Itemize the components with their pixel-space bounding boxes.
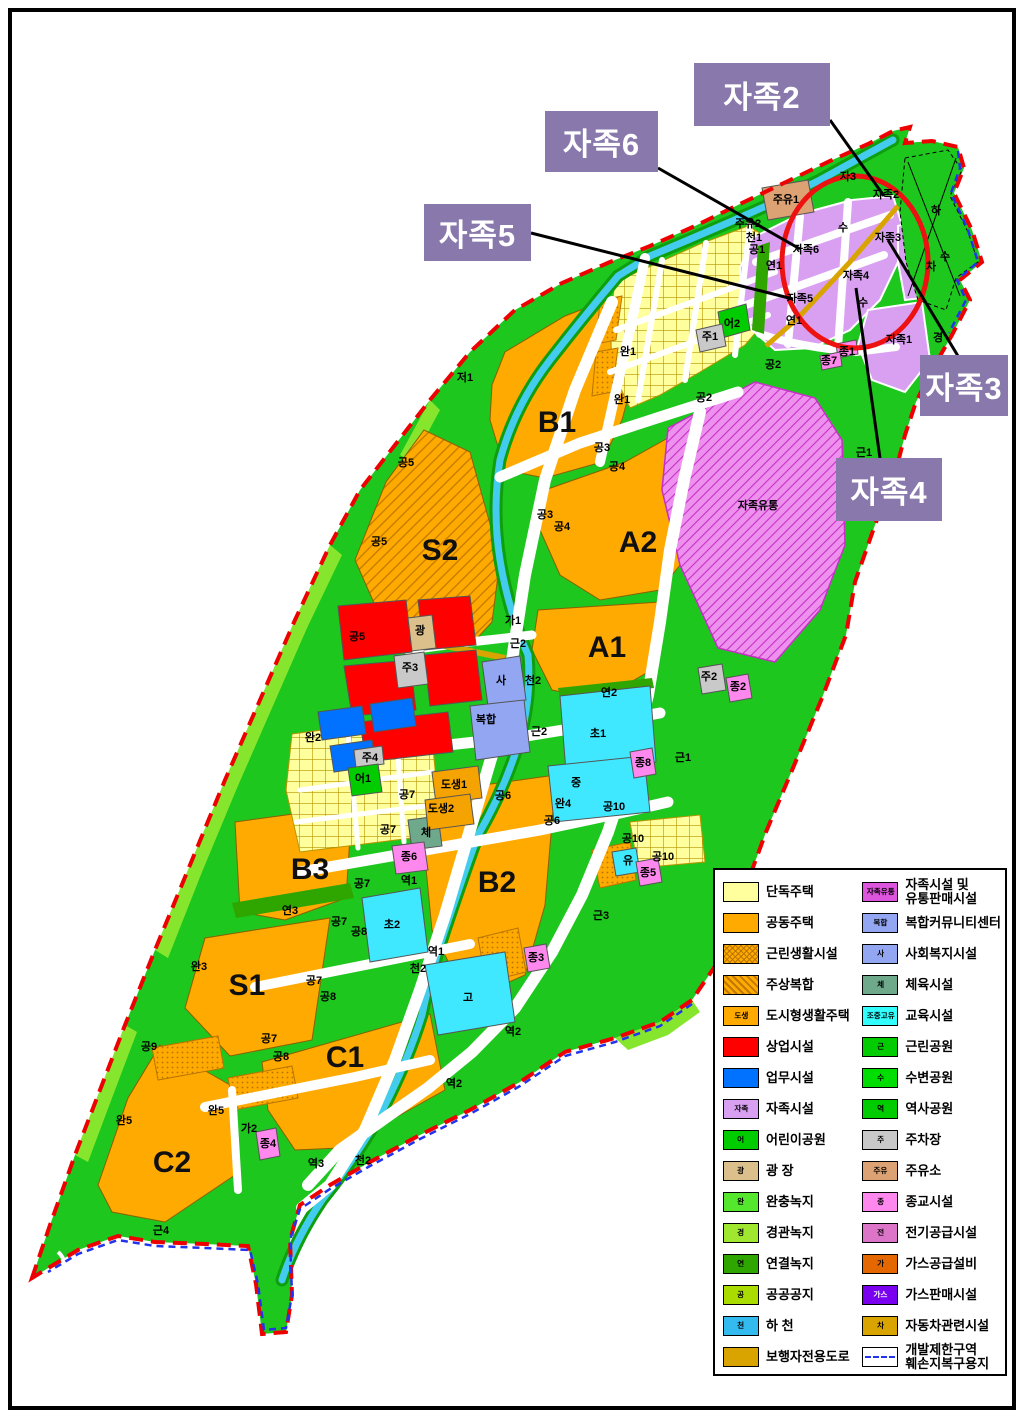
legend-swatch: 전: [862, 1223, 898, 1243]
callout-jajok2: 자족2: [694, 63, 830, 126]
map-label: 완2: [305, 731, 321, 744]
map-label: 종6: [401, 850, 417, 863]
map-label: 하: [931, 203, 942, 217]
legend-swatch-code: 완: [737, 1198, 744, 1206]
legend-swatch: [723, 1068, 759, 1088]
map-label: 차: [926, 259, 937, 273]
legend-swatch-code: 가스: [873, 1291, 887, 1299]
legend-item: 조중고유교육시설: [862, 1000, 1001, 1031]
map-label: 역2: [505, 1024, 521, 1038]
legend-item: 연연결녹지: [723, 1248, 858, 1279]
legend-swatch-code: 근: [877, 1043, 884, 1051]
legend-label: 체육시설: [905, 978, 953, 992]
legend-item: 천하 천: [723, 1310, 858, 1341]
legend-swatch: 가스: [862, 1285, 898, 1305]
legend-swatch-code: 공: [737, 1291, 744, 1299]
map-label: 주1: [702, 330, 718, 343]
legend-label: 주유소: [905, 1164, 941, 1178]
legend-label: 경관녹지: [766, 1226, 814, 1240]
map-label: 자족6: [793, 242, 819, 256]
legend-item: 경경관녹지: [723, 1217, 858, 1248]
callout-jajok4: 자족4: [836, 458, 942, 521]
map-label: 가1: [505, 613, 521, 627]
map-label: 공7: [261, 1032, 277, 1045]
map-label: 공8: [351, 925, 367, 938]
map-label: 공7: [306, 974, 322, 987]
legend-label: 역사공원: [905, 1102, 953, 1116]
legend-swatch-code: 조중고유: [866, 1012, 894, 1020]
legend-item: 자족자족시설: [723, 1093, 858, 1124]
map-label: 공2: [696, 391, 712, 404]
map-label: 공5: [398, 456, 414, 469]
legend-label: 전기공급시설: [905, 1226, 977, 1240]
zone-letter: A2: [619, 526, 657, 559]
legend-item: 근린생활시설: [723, 938, 858, 969]
map-label: 종7: [821, 354, 837, 367]
legend-swatch: 광: [723, 1161, 759, 1181]
legend-item: 수수변공원: [862, 1062, 1001, 1093]
map-label: 공6: [544, 814, 560, 827]
legend-label: 단독주택: [766, 885, 814, 899]
map-label: 종4: [260, 1137, 277, 1150]
map-label: 종2: [730, 680, 746, 693]
stream-notch: [58, 1252, 78, 1290]
legend-swatch: 경: [723, 1223, 759, 1243]
map-label: 연2: [601, 685, 617, 699]
map-label: 근2: [510, 637, 526, 650]
legend-swatch-code: 역: [877, 1105, 884, 1113]
map-label: 역1: [428, 944, 444, 958]
map-label: 가2: [241, 1121, 257, 1135]
map-label: 공7: [399, 788, 415, 801]
map-label: 완4: [555, 797, 572, 810]
legend-item: 보행자전용도로: [723, 1341, 858, 1372]
map-label: 자족3: [875, 230, 901, 244]
legend-swatch-code: 천: [737, 1322, 744, 1330]
legend-label: 복합커뮤니티센터: [905, 916, 1001, 930]
map-label: 초2: [384, 918, 400, 931]
legend-swatch: [862, 1347, 898, 1367]
map-label: 공7: [380, 823, 396, 836]
legend-label: 자족시설: [766, 1102, 814, 1116]
legend-swatch: 천: [723, 1316, 759, 1336]
legend-column-right: 자족유통자족시설 및유통판매시설복합복합커뮤니티센터사사회복지시설체체육시설조중…: [862, 876, 1001, 1370]
legend-swatch: 연: [723, 1254, 759, 1274]
legend-column-left: 단독주택공동주택근린생활시설주상복합도생도시형생활주택상업시설업무시설자족자족시…: [723, 876, 858, 1370]
map-label: 공4: [609, 460, 626, 473]
legend-label: 교육시설: [905, 1009, 953, 1023]
legend-swatch: 가: [862, 1254, 898, 1274]
legend-swatch: 근: [862, 1037, 898, 1057]
legend-swatch-code: 자족유통: [866, 888, 894, 896]
legend-item: 자족유통자족시설 및유통판매시설: [862, 876, 1001, 907]
legend-label: 수변공원: [905, 1071, 953, 1085]
legend-swatch: [723, 975, 759, 995]
legend-swatch: 조중고유: [862, 1006, 898, 1026]
legend-swatch: [723, 1037, 759, 1057]
legend-item: 공공공공지: [723, 1279, 858, 1310]
legend-item: 사사회복지시설: [862, 938, 1001, 969]
zone-letter: B3: [291, 853, 329, 886]
legend-item: 도생도시형생활주택: [723, 1000, 858, 1031]
map-label: 공3: [594, 441, 610, 454]
map-label: 공4: [554, 520, 571, 533]
land-use-plan-page: B1A2A1S2B2B3S1C1C2 자3주유1주유2천1공1하수수차경자족2자…: [0, 0, 1024, 1418]
legend-swatch: 사: [862, 944, 898, 964]
legend-label: 연결녹지: [766, 1257, 814, 1271]
callout-jajok3: 자족3: [920, 355, 1008, 416]
map-label: 근1: [675, 751, 691, 764]
map-label: 역2: [446, 1076, 462, 1090]
legend-item: 단독주택: [723, 876, 858, 907]
map-label: 완1: [620, 345, 636, 358]
map-label: 광: [415, 624, 425, 637]
legend-label: 보행자전용도로: [766, 1350, 850, 1364]
map-label: 주2: [701, 670, 717, 683]
map-label: 공6: [495, 789, 511, 802]
legend-label: 근린공원: [905, 1040, 953, 1054]
legend-item: 광광 장: [723, 1155, 858, 1186]
map-label: 어2: [724, 316, 740, 330]
map-label: 종3: [528, 951, 544, 964]
legend: 단독주택공동주택근린생활시설주상복합도생도시형생활주택상업시설업무시설자족자족시…: [713, 868, 1007, 1376]
map-label: 자족유통: [738, 498, 778, 512]
map-label: 역1: [401, 873, 417, 887]
legend-item: 주상복합: [723, 969, 858, 1000]
map-label: 공5: [371, 535, 387, 548]
map-label: 어1: [355, 771, 371, 785]
map-label: 연1: [786, 313, 802, 327]
stream-park-area: [900, 150, 978, 310]
map-label: 도생2: [428, 801, 454, 815]
legend-item: 개발제한구역훼손지복구용지: [862, 1341, 1001, 1372]
legend-label: 사회복지시설: [905, 947, 977, 961]
legend-item: 가스가스판매시설: [862, 1279, 1001, 1310]
legend-swatch: 자족유통: [862, 882, 898, 902]
legend-swatch: 완: [723, 1192, 759, 1212]
map-label: 복합: [476, 712, 496, 726]
zone-letter: B1: [538, 406, 576, 439]
map-label: 중: [571, 776, 581, 789]
legend-swatch: 주: [862, 1130, 898, 1150]
map-label: 종5: [640, 866, 656, 879]
legend-swatch: 공: [723, 1285, 759, 1305]
map-label: 공8: [320, 990, 336, 1003]
legend-label: 종교시설: [905, 1195, 953, 1209]
legend-swatch: 자족: [723, 1099, 759, 1119]
map-label: 도생1: [441, 777, 467, 791]
map-label: 주4: [362, 751, 379, 764]
zone-letter: A1: [588, 631, 626, 664]
legend-swatch-code: 가: [877, 1260, 884, 1268]
legend-swatch-code: 연: [737, 1260, 744, 1268]
legend-swatch-code: 광: [737, 1167, 744, 1175]
legend-item: 전전기공급시설: [862, 1217, 1001, 1248]
legend-swatch-code: 경: [737, 1229, 744, 1237]
legend-item: 업무시설: [723, 1062, 858, 1093]
legend-swatch-code: 주유: [873, 1167, 887, 1175]
legend-swatch-code: 종: [877, 1198, 884, 1206]
map-label: 저1: [457, 370, 473, 384]
map-label: 공9: [141, 1040, 157, 1053]
legend-swatch-code: 어: [737, 1136, 744, 1144]
map-label: 공10: [622, 832, 644, 845]
map-label: 완5: [116, 1114, 132, 1127]
legend-item: 종종교시설: [862, 1186, 1001, 1217]
map-label: 공10: [652, 850, 674, 863]
legend-label: 공공공지: [766, 1288, 814, 1302]
legend-item: 주유주유소: [862, 1155, 1001, 1186]
map-label: 공8: [273, 1050, 289, 1063]
legend-label: 광 장: [766, 1164, 794, 1178]
legend-label: 주차장: [905, 1133, 941, 1147]
legend-swatch-code: 복합: [873, 919, 887, 927]
map-label: 고: [463, 992, 473, 1004]
legend-swatch: 주유: [862, 1161, 898, 1181]
map-label: 공3: [537, 508, 553, 521]
legend-item: 차자동차관련시설: [862, 1310, 1001, 1341]
map-label: 공1: [749, 243, 765, 256]
map-label: 종1: [839, 345, 855, 358]
legend-item: 완완충녹지: [723, 1186, 858, 1217]
legend-item: 어어린이공원: [723, 1124, 858, 1155]
legend-label: 근린생활시설: [766, 947, 838, 961]
legend-swatch-code: 자족: [734, 1105, 748, 1113]
map-label: 경: [933, 330, 943, 344]
map-label: 근4: [153, 1224, 170, 1237]
map-label: 완3: [191, 960, 207, 973]
map-label: 완1: [614, 393, 630, 406]
zone-letter: C2: [153, 1146, 191, 1179]
zone-letter: B2: [478, 866, 516, 899]
map-label: 자족5: [787, 291, 813, 305]
map-label: 완5: [208, 1104, 224, 1117]
zone-letter: S2: [422, 534, 459, 567]
map-label: 연1: [766, 258, 782, 272]
map-label: 자족1: [886, 332, 912, 346]
legend-item: 복합복합커뮤니티센터: [862, 907, 1001, 938]
legend-label: 어린이공원: [766, 1133, 826, 1147]
legend-swatch: [723, 944, 759, 964]
map-label: 공7: [331, 915, 347, 928]
legend-item: 근근린공원: [862, 1031, 1001, 1062]
legend-swatch: 어: [723, 1130, 759, 1150]
map-label: 자족4: [843, 268, 870, 282]
map-label: 사: [496, 673, 507, 687]
map-label: 연3: [282, 903, 298, 917]
legend-label: 공동주택: [766, 916, 814, 930]
legend-swatch: 도생: [723, 1006, 759, 1026]
map-label: 자3: [840, 169, 856, 183]
map-label: 공7: [354, 877, 370, 890]
map-label: 체: [421, 825, 431, 839]
map-label: 주유2: [735, 217, 761, 230]
legend-item: 주주차장: [862, 1124, 1001, 1155]
map-label: 천2: [410, 961, 426, 975]
zone-letter: S1: [229, 969, 266, 1002]
legend-swatch-code: 사: [877, 950, 884, 958]
legend-swatch-code: 주: [877, 1136, 884, 1144]
map-label: 근2: [531, 725, 547, 738]
legend-swatch-code: 전: [877, 1229, 884, 1237]
legend-item: 역역사공원: [862, 1093, 1001, 1124]
map-label: 수: [940, 250, 950, 263]
map-label: 자족2: [873, 187, 899, 201]
callout-jajok6: 자족6: [545, 111, 658, 172]
legend-swatch-code: 체: [877, 981, 884, 989]
legend-label: 개발제한구역훼손지복구용지: [905, 1343, 989, 1370]
map-label: 수: [858, 296, 868, 309]
map-label: 주유1: [773, 193, 799, 206]
legend-label: 도시형생활주택: [766, 1009, 850, 1023]
legend-label: 자족시설 및유통판매시설: [905, 878, 977, 905]
map-label: 종8: [635, 756, 651, 769]
legend-swatch: 수: [862, 1068, 898, 1088]
legend-label: 가스공급설비: [905, 1257, 977, 1271]
map-label: 공10: [603, 800, 625, 813]
legend-swatch-code: 수: [877, 1074, 884, 1082]
legend-swatch: [723, 882, 759, 902]
legend-label: 주상복합: [766, 978, 814, 992]
legend-item: 체체육시설: [862, 969, 1001, 1000]
map-label: 공5: [349, 630, 365, 643]
map-label: 천2: [355, 1153, 371, 1167]
legend-swatch: 복합: [862, 913, 898, 933]
legend-label: 완충녹지: [766, 1195, 814, 1209]
legend-swatch: 역: [862, 1099, 898, 1119]
legend-item: 가가스공급설비: [862, 1248, 1001, 1279]
legend-item: 상업시설: [723, 1031, 858, 1062]
legend-label: 상업시설: [766, 1040, 814, 1054]
legend-swatch: [723, 913, 759, 933]
map-label: 역3: [308, 1156, 324, 1170]
dashed-line-icon: [865, 1356, 895, 1358]
map-label: 공2: [765, 358, 781, 371]
legend-label: 업무시설: [766, 1071, 814, 1085]
legend-label: 자동차관련시설: [905, 1319, 989, 1333]
legend-swatch: 종: [862, 1192, 898, 1212]
map-label: 수: [838, 221, 848, 234]
map-label: 초1: [590, 727, 606, 740]
map-label: 유: [623, 854, 633, 867]
map-label: 근3: [593, 909, 609, 922]
legend-item: 공동주택: [723, 907, 858, 938]
zone-letter: C1: [326, 1041, 364, 1074]
legend-label: 하 천: [766, 1319, 794, 1333]
legend-swatch-code: 도생: [734, 1012, 748, 1020]
legend-label: 가스판매시설: [905, 1288, 977, 1302]
map-label: 천2: [525, 673, 541, 687]
legend-swatch: [723, 1347, 759, 1367]
legend-swatch: 체: [862, 975, 898, 995]
map-label: 주3: [402, 661, 418, 674]
legend-swatch-code: 차: [877, 1322, 884, 1330]
legend-swatch: 차: [862, 1316, 898, 1336]
callout-jajok5: 자족5: [424, 204, 531, 261]
map-label: 천1: [746, 230, 762, 244]
